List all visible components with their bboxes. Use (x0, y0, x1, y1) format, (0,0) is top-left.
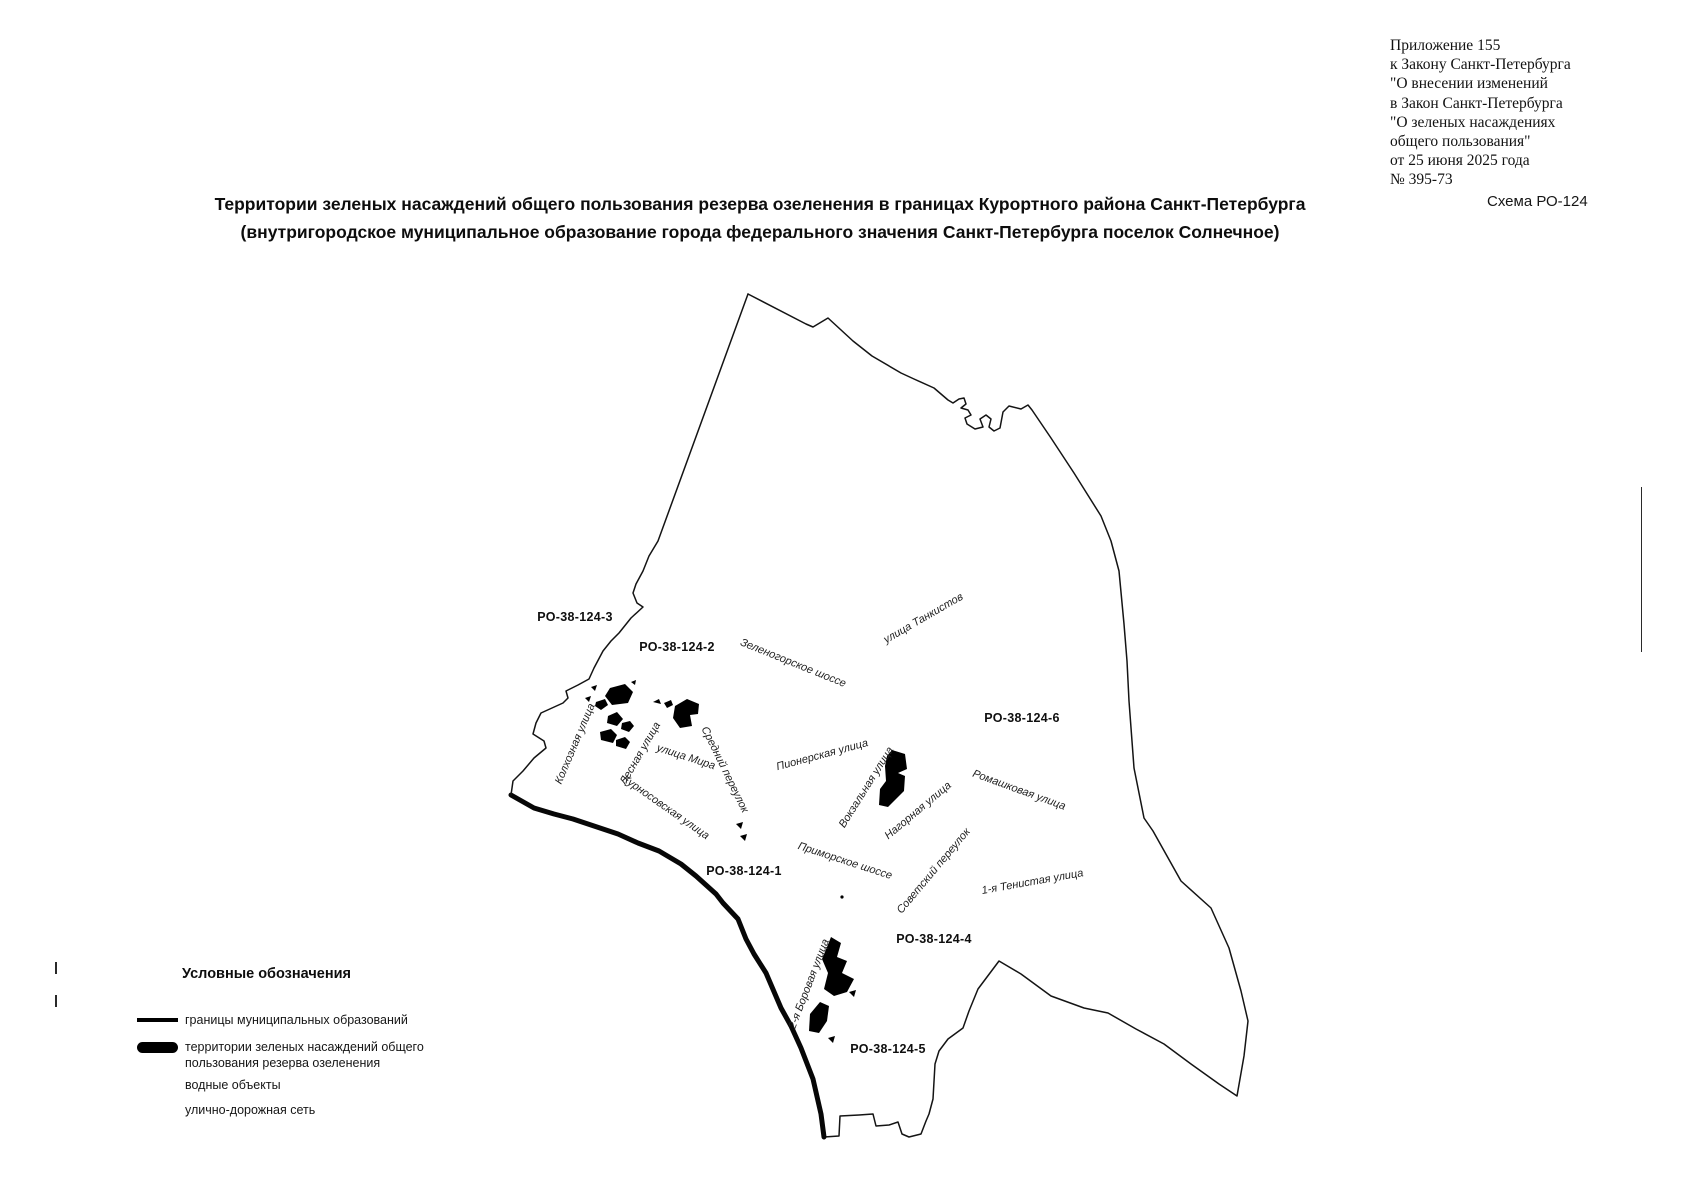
street-label: 1-я Тенистая улица (981, 867, 1085, 897)
green-area-polygon (828, 1036, 835, 1043)
street-label: Советский переулок (895, 825, 974, 916)
green-area-polygon (595, 699, 608, 710)
zone-code-label: РО-38-124-2 (639, 640, 714, 654)
green-area-polygon (736, 822, 743, 829)
street-label: Приморское шоссе (796, 840, 893, 882)
edge-mark (55, 962, 57, 974)
green-area-polygon (621, 721, 634, 732)
green-area-polygon (673, 699, 699, 728)
green-area-polygon (653, 699, 661, 704)
legend-item-label: границы муниципальных образований (185, 1013, 445, 1029)
green-area-polygon (664, 700, 673, 708)
legend-boundary-line-swatch (137, 1018, 178, 1022)
green-area-dot (840, 895, 843, 898)
green-area-polygon (605, 684, 633, 705)
green-area-polygon (607, 712, 623, 726)
legend-item-label: улично-дорожная сеть (185, 1103, 445, 1119)
legend-item-label: территории зеленых насаждений общего пол… (185, 1040, 475, 1071)
green-area-polygon (585, 696, 591, 702)
zone-code-label: РО-38-124-6 (984, 711, 1059, 725)
document-page: Приложение 155 к Закону Санкт-Петербурга… (0, 0, 1705, 1200)
green-area-polygon (591, 685, 597, 691)
street-label: Курносовская улица (620, 773, 711, 842)
zone-code-label: РО-38-124-1 (706, 864, 781, 878)
street-label: Колхозная улица (553, 702, 598, 786)
zone-code-label: РО-38-124-4 (896, 932, 971, 946)
street-label: Ромашковая улица (971, 768, 1067, 813)
edge-mark (1641, 487, 1642, 652)
shoreline-boundary-line (511, 795, 824, 1137)
edge-mark (55, 995, 57, 1007)
green-area-dot (898, 766, 901, 769)
municipal-boundary-line-west (511, 294, 748, 795)
legend-item-label: водные объекты (185, 1078, 445, 1094)
green-area-polygon (849, 990, 856, 997)
green-area-polygon (740, 834, 747, 841)
green-area-polygon (631, 680, 636, 685)
green-area-polygon (616, 737, 630, 749)
street-label: Зеленогорское шоссе (739, 637, 848, 690)
zone-code-label: РО-38-124-5 (850, 1042, 925, 1056)
green-area-polygon (809, 1002, 829, 1033)
street-label: улица Танкистов (881, 591, 966, 647)
street-label: Пионерская улица (775, 737, 869, 773)
legend-green-area-swatch (137, 1042, 178, 1053)
zone-code-label: РО-38-124-3 (537, 610, 612, 624)
legend-title: Условные обозначения (182, 966, 351, 982)
green-area-polygon (600, 729, 617, 743)
